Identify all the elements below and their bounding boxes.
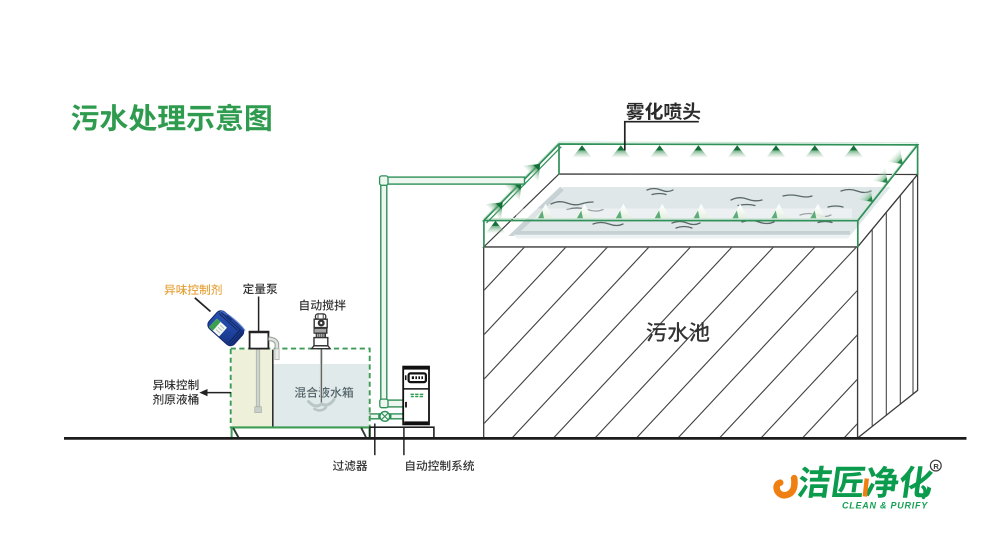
svg-text:R: R xyxy=(933,462,939,471)
svg-text:CLEAN & PURIFY: CLEAN & PURIFY xyxy=(842,501,928,511)
